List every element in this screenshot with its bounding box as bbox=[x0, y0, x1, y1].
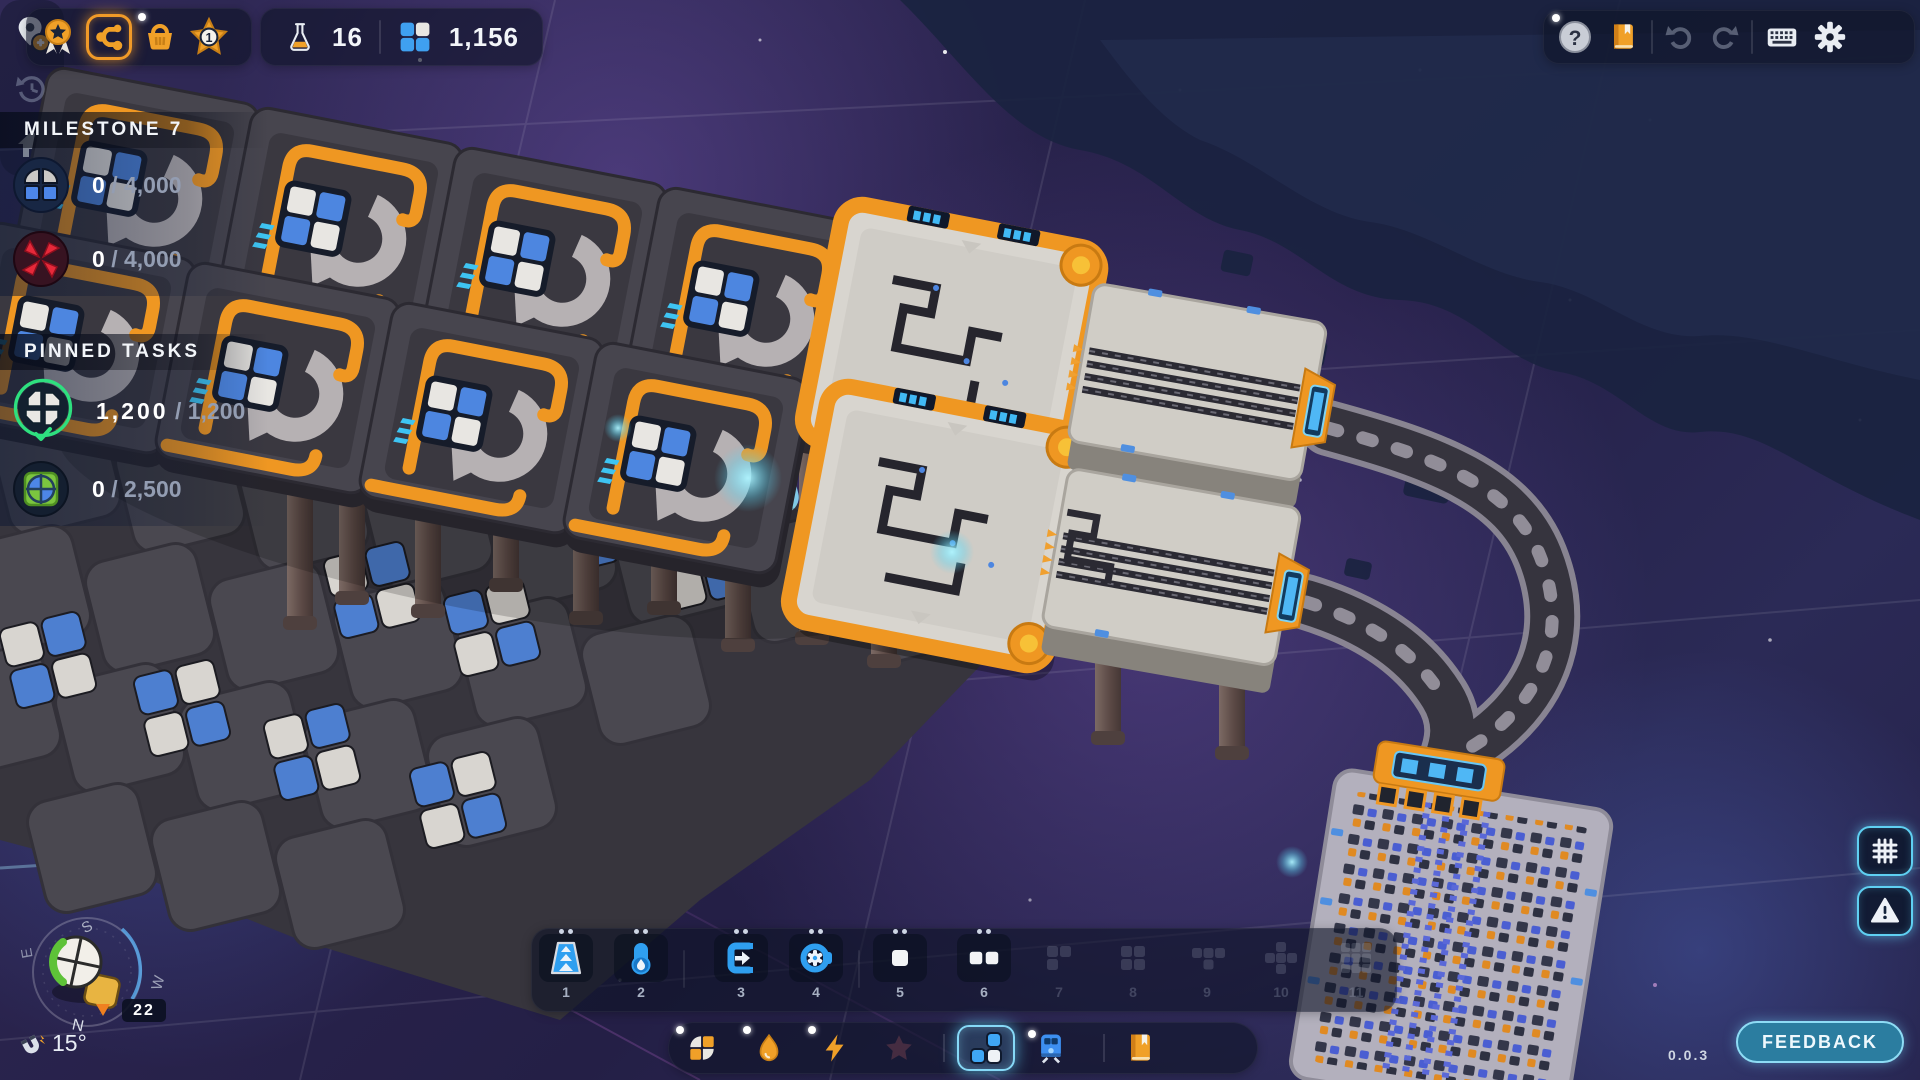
hotbar-slot-processor[interactable]: 4 bbox=[786, 934, 846, 1006]
hotbar-key: 6 bbox=[980, 984, 988, 1000]
notification-dot bbox=[1552, 14, 1560, 22]
hotbar-slot-shape-single[interactable]: 5 bbox=[870, 934, 930, 1006]
hotbar-key: 9 bbox=[1203, 984, 1211, 1000]
red-star-shape-icon bbox=[12, 230, 70, 288]
pinned-tasks-header: PINNED TASKS bbox=[0, 334, 268, 370]
redo-icon[interactable] bbox=[1707, 20, 1741, 54]
crosshair-shape-icon bbox=[12, 460, 70, 518]
tier-dots bbox=[634, 929, 648, 934]
milestone-task-row[interactable]: 0 / 4,000 bbox=[0, 148, 268, 222]
milestone-panel: MILESTONE 7 0 / 4,000 bbox=[0, 112, 268, 296]
shape-plus-icon bbox=[1261, 938, 1301, 978]
task-progress: 0 / 2,500 bbox=[92, 476, 182, 503]
history-icon[interactable] bbox=[13, 71, 51, 109]
pinned-tasks-title: PINNED TASKS bbox=[24, 341, 200, 363]
hotbar-slot-belt[interactable]: 1 bbox=[536, 934, 596, 1006]
achievement-star-icon[interactable]: 1 bbox=[188, 16, 230, 58]
magnet-icon[interactable] bbox=[16, 1032, 48, 1069]
version-label: 0.0.3 bbox=[1668, 1047, 1709, 1063]
shop-basket-icon[interactable] bbox=[140, 17, 180, 57]
hotbar-divider bbox=[683, 950, 685, 988]
undo-icon[interactable] bbox=[1663, 20, 1697, 54]
task-progress: 0 / 4,000 bbox=[92, 246, 182, 273]
knowledge-book-icon[interactable] bbox=[1605, 19, 1641, 55]
hotbar-key: 11 bbox=[1349, 984, 1364, 1000]
star-badge-number: 1 bbox=[205, 31, 212, 45]
hotbar-key: 2 bbox=[637, 984, 645, 1000]
help-glyph: ? bbox=[1569, 27, 1582, 50]
compass-west: W bbox=[148, 973, 168, 992]
belt-icon bbox=[546, 938, 586, 978]
tier-dots bbox=[734, 929, 748, 934]
shape-quad-icon bbox=[397, 19, 433, 55]
locked-star-tab-icon[interactable] bbox=[879, 1028, 919, 1068]
settings-gear-icon[interactable] bbox=[1811, 18, 1849, 56]
shape-double-icon bbox=[964, 938, 1004, 978]
tab-divider bbox=[943, 1034, 945, 1062]
tier-dots bbox=[559, 929, 573, 934]
resources-panel: 16 1,156 bbox=[260, 8, 543, 66]
hotbar-slot-locked[interactable]: 11 bbox=[1326, 934, 1386, 1006]
milestone-header: MILESTONE 7 bbox=[0, 112, 268, 148]
shape-quad-icon bbox=[1113, 938, 1153, 978]
toolbar-divider bbox=[1651, 20, 1653, 54]
top-left-toolbar: 1 bbox=[26, 8, 252, 66]
notification-dot bbox=[808, 1026, 816, 1034]
hotbar-key: 5 bbox=[896, 984, 904, 1000]
task-progress: 0 / 4,000 bbox=[92, 172, 182, 199]
warning-button[interactable] bbox=[1857, 886, 1913, 936]
processor-icon bbox=[796, 938, 836, 978]
energy-tab-icon[interactable] bbox=[815, 1028, 855, 1068]
trains-tab-icon[interactable] bbox=[1031, 1028, 1071, 1068]
shape-t-icon bbox=[1187, 938, 1227, 978]
warning-icon bbox=[1868, 894, 1902, 928]
pinned-task-row[interactable]: 0 / 2,500 bbox=[0, 452, 268, 526]
hotbar-slot-locked[interactable]: 9 bbox=[1177, 934, 1237, 1006]
tier-dots bbox=[809, 929, 823, 934]
milestone-task-row[interactable]: 0 / 4,000 bbox=[0, 222, 268, 296]
shapes-count: 1,156 bbox=[449, 22, 519, 53]
notification-dot bbox=[138, 13, 146, 21]
camera-tilt-label: 15° bbox=[52, 1030, 87, 1057]
hotbar-slot-pipe[interactable]: 2 bbox=[611, 934, 671, 1006]
tab-divider bbox=[1103, 1034, 1105, 1062]
compass-south: S bbox=[79, 917, 96, 937]
compass-heading-badge: 22 bbox=[122, 999, 166, 1022]
hotbar-slot-extractor[interactable]: 3 bbox=[711, 934, 771, 1006]
help-icon[interactable]: ? bbox=[1555, 17, 1595, 57]
task-progress: 1,200 / 1,200 bbox=[96, 398, 245, 425]
hotbar-slot-locked[interactable]: 10 bbox=[1251, 934, 1311, 1006]
keyboard-icon[interactable] bbox=[1763, 18, 1801, 56]
pinned-tasks-panel: PINNED TASKS 1,200 / 1,200 bbox=[0, 334, 268, 526]
pipe-icon bbox=[621, 938, 661, 978]
pinned-task-row[interactable]: 1,200 / 1,200 bbox=[0, 370, 268, 452]
notification-dot bbox=[743, 1026, 751, 1034]
hotbar-slot-shape-double[interactable]: 6 bbox=[954, 934, 1014, 1006]
hotbar-divider bbox=[858, 950, 860, 988]
medal-icon[interactable] bbox=[38, 17, 78, 57]
notification-dot bbox=[676, 1026, 684, 1034]
fluids-tab-icon[interactable] bbox=[749, 1028, 789, 1068]
game-stage: 1 16 1,156 ? bbox=[0, 0, 1920, 1080]
category-tab-bar bbox=[668, 1022, 1258, 1074]
milestone-title: MILESTONE bbox=[24, 119, 162, 141]
extractor-icon bbox=[721, 938, 761, 978]
current-shape-tab-icon bbox=[966, 1028, 1006, 1068]
toolbar-divider bbox=[1751, 20, 1753, 54]
hotbar-key: 1 bbox=[562, 984, 570, 1000]
shape-grid9-icon bbox=[1336, 938, 1376, 978]
resource-divider bbox=[379, 20, 381, 54]
tasks-icon[interactable] bbox=[86, 14, 132, 60]
hotbar-key: 7 bbox=[1055, 984, 1063, 1000]
shapes-tab-icon[interactable] bbox=[682, 1028, 722, 1068]
hotbar-key: 4 bbox=[812, 984, 820, 1000]
tier-dots bbox=[977, 929, 991, 934]
notification-dot bbox=[1028, 1030, 1036, 1038]
grid-overlay-button[interactable] bbox=[1857, 826, 1913, 876]
hotbar-slot-locked[interactable]: 7 bbox=[1029, 934, 1089, 1006]
research-count: 16 bbox=[332, 22, 363, 53]
window-shape-icon bbox=[12, 156, 70, 214]
game-scene bbox=[0, 0, 1920, 1080]
current-shape-tab[interactable] bbox=[957, 1025, 1015, 1071]
hotbar-key: 3 bbox=[737, 984, 745, 1000]
compass-east: E bbox=[18, 947, 36, 960]
grid-overlay-icon bbox=[1868, 834, 1902, 868]
knowledge-tab-icon[interactable] bbox=[1120, 1028, 1160, 1068]
shape-single-icon bbox=[880, 938, 920, 978]
flask-icon bbox=[284, 20, 316, 54]
tier-dots bbox=[893, 929, 907, 934]
milestone-number: 7 bbox=[170, 119, 184, 141]
feedback-button[interactable]: FEEDBACK bbox=[1736, 1021, 1904, 1063]
fan-shape-icon bbox=[12, 378, 74, 444]
hotbar-key: 8 bbox=[1129, 984, 1137, 1000]
hotbar-slot-locked[interactable]: 8 bbox=[1103, 934, 1163, 1006]
building-hotbar: 1 2 3 bbox=[531, 928, 1397, 1012]
hotbar-key: 10 bbox=[1273, 984, 1289, 1000]
shape-l-icon bbox=[1039, 938, 1079, 978]
top-right-toolbar: ? bbox=[1543, 10, 1915, 64]
